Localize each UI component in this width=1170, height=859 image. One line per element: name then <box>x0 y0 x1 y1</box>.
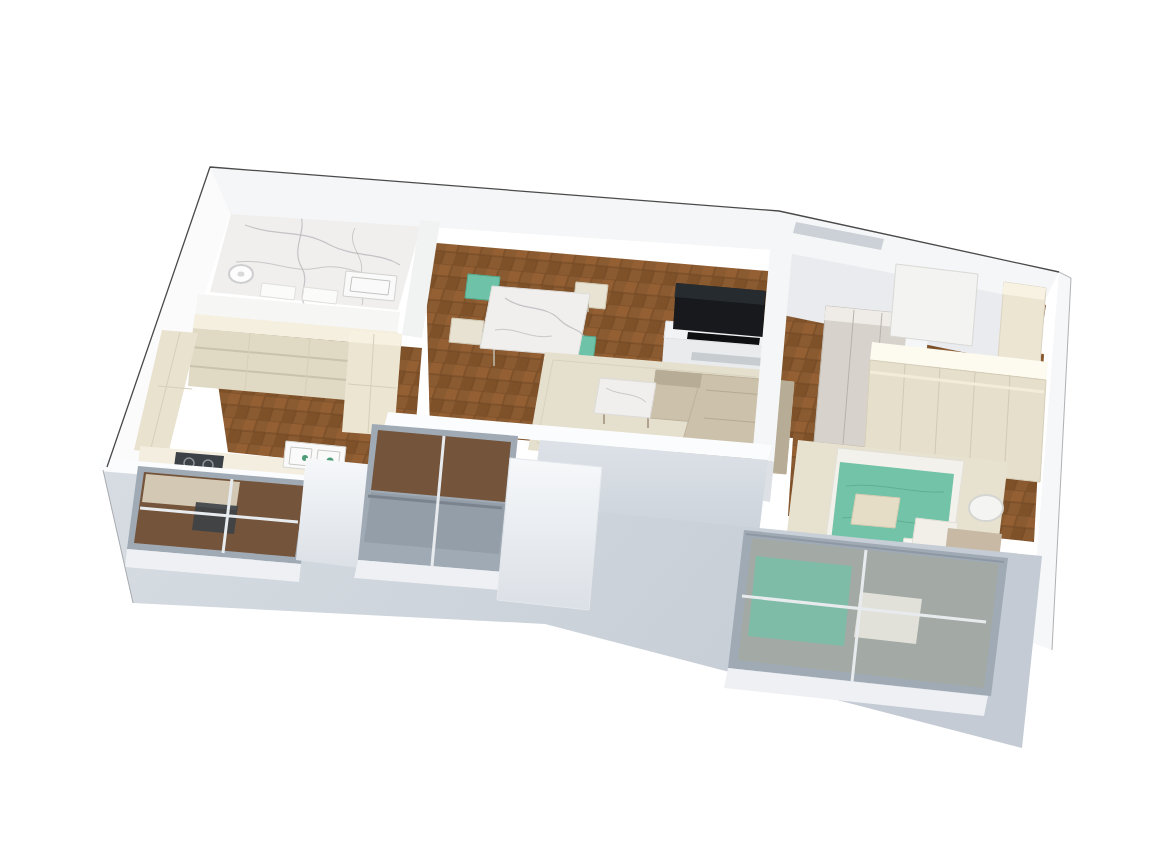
kitchen-window <box>125 466 312 582</box>
cream-accent-pillow <box>851 494 900 528</box>
dining-table-top <box>480 286 590 356</box>
tall-cream-cabinet <box>998 282 1046 364</box>
floor-plan-render-stage <box>0 0 1170 859</box>
wall-sink <box>343 271 397 301</box>
tv-zone <box>662 283 774 374</box>
open-door-panel <box>890 264 978 346</box>
round-side-table <box>969 495 1003 521</box>
kitchen-interior-stove-view <box>192 502 238 534</box>
hall-window <box>354 424 518 590</box>
bedroom-window <box>724 530 1008 716</box>
pillow-through-glass <box>854 592 922 644</box>
apartment-3d-floor-plan <box>0 0 1170 859</box>
chair-cream-w <box>449 318 484 345</box>
corridor-wall-end-slab <box>497 458 602 610</box>
coffee-table-top <box>594 378 656 418</box>
shower-head-center <box>238 271 245 276</box>
